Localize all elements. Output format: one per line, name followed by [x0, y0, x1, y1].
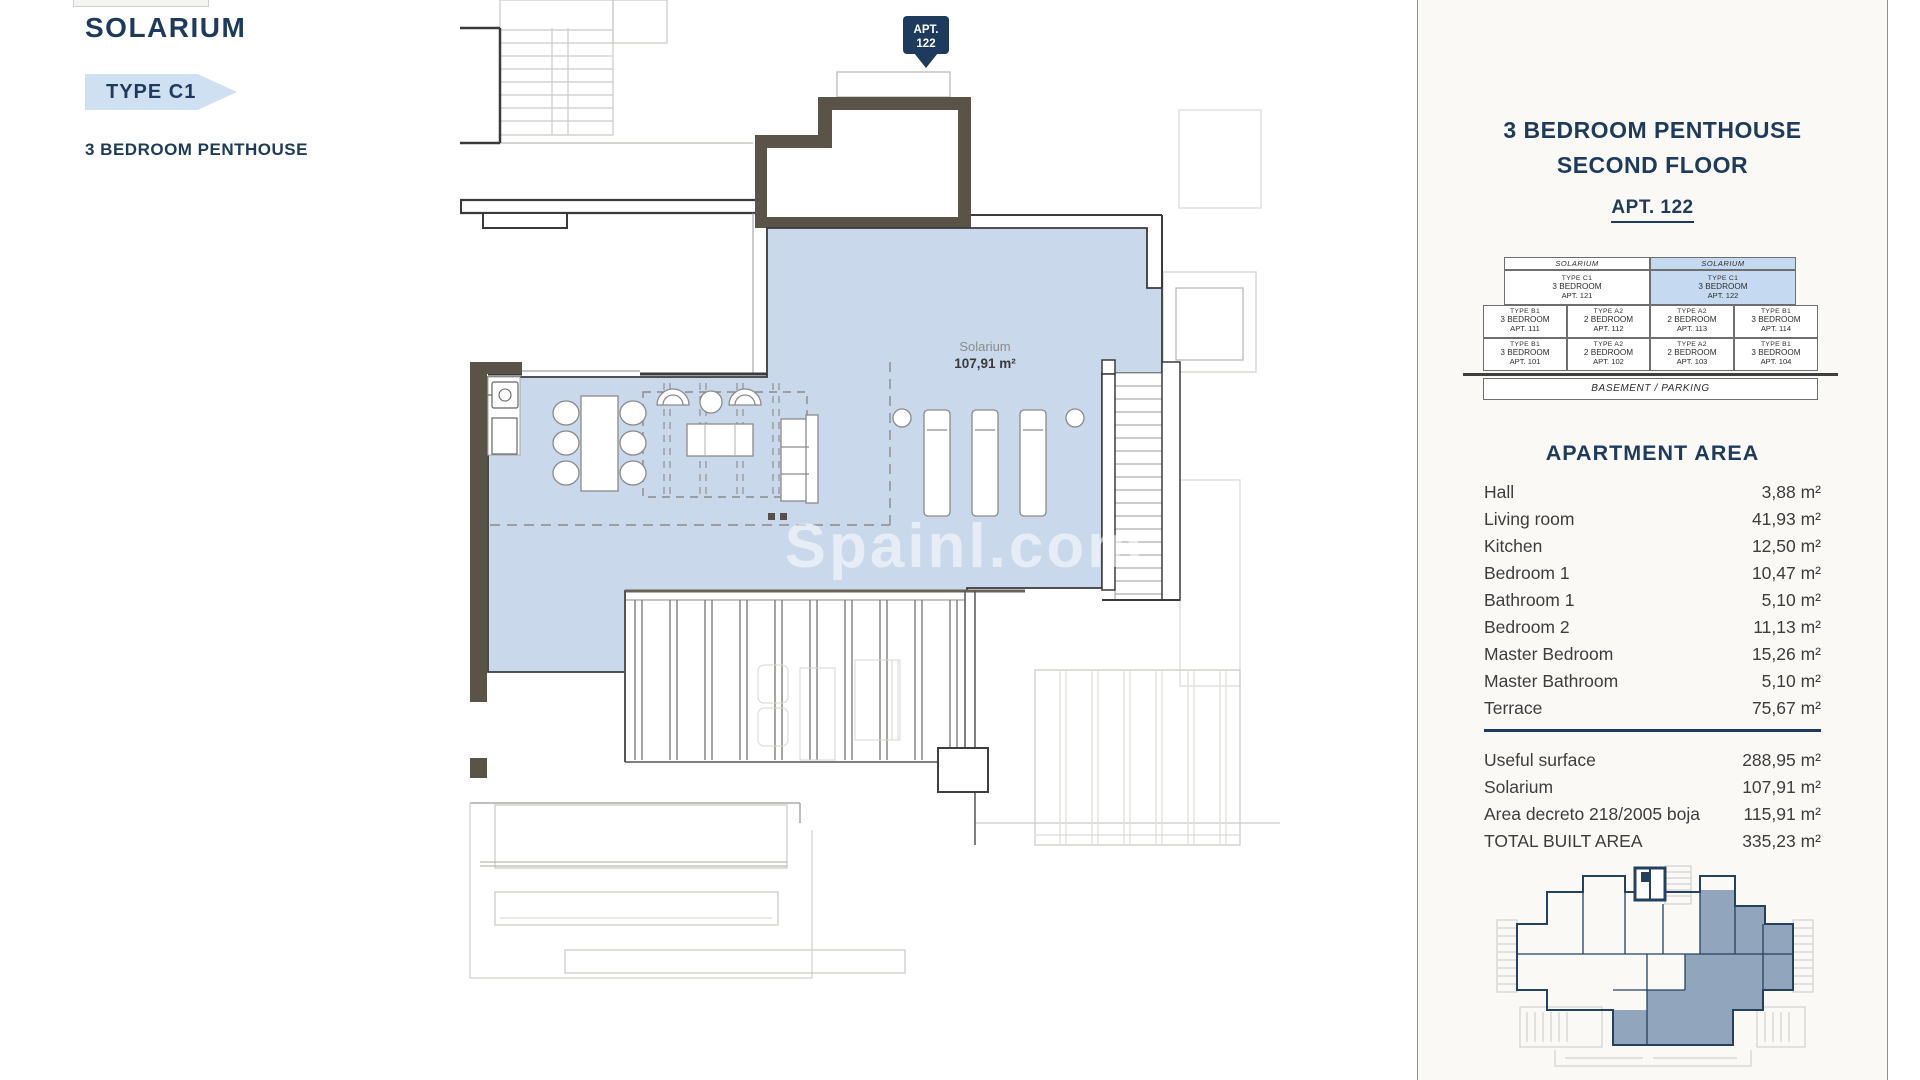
area-row-value: 75,67 m²: [1752, 695, 1821, 722]
total-row-value: 288,95 m²: [1742, 747, 1821, 774]
coffee-table: [687, 424, 753, 456]
page-title: SOLARIUM: [85, 12, 246, 44]
total-row-label: Useful surface: [1484, 747, 1596, 774]
area-row-value: 5,10 m²: [1762, 668, 1821, 695]
stack-cell-apt-122: TYPE C1 3 BEDROOM APT. 122: [1650, 270, 1796, 305]
area-row-value: 11,13 m²: [1753, 614, 1821, 641]
ground-line: [1463, 373, 1838, 376]
area-row-value: 41,93 m²: [1752, 506, 1821, 533]
apt-number: APT. 122: [1418, 197, 1887, 223]
total-row-value: 107,91 m²: [1742, 774, 1821, 801]
sun-lounger: [924, 410, 950, 516]
stack-cell-apt-112: TYPE A22 BEDROOMAPT. 112: [1567, 305, 1650, 338]
area-row-label: Bathroom 1: [1484, 587, 1574, 614]
apt-flag: APT. 122: [903, 16, 949, 68]
area-row-label: Hall: [1484, 479, 1514, 506]
building-stack-diagram: SOLARIUM SOLARIUM TYPE C1 3 BEDROOM APT.…: [1483, 257, 1818, 402]
watermark: Spainl.com: [785, 512, 1146, 581]
total-row-value: 115,91 m²: [1744, 801, 1822, 828]
area-row-label: Kitchen: [1484, 533, 1542, 560]
window-wall: [625, 591, 1025, 845]
stack-cell-basement: BASEMENT / PARKING: [1483, 378, 1818, 400]
total-row-value: 335,23 m²: [1742, 828, 1821, 855]
stack-cell-apt-101: TYPE B13 BEDROOMAPT. 101: [1483, 338, 1567, 371]
panel-title-line1: 3 BEDROOM PENTHOUSE: [1418, 117, 1887, 144]
totals-list: Useful surface288,95 m² Solarium107,91 m…: [1484, 747, 1821, 855]
total-row: Solarium107,91 m²: [1484, 774, 1821, 801]
room-area-label: 107,91 m²: [954, 356, 1016, 371]
area-row: Terrace75,67 m²: [1484, 695, 1821, 722]
brochure-page: SOLARIUM TYPE C1 3 BEDROOM PENTHOUSE: [0, 0, 1920, 1080]
area-row: Kitchen12,50 m²: [1484, 533, 1821, 560]
stack-cell-apt-111: TYPE B13 BEDROOMAPT. 111: [1483, 305, 1567, 338]
stack-cell-solarium-122: SOLARIUM: [1650, 257, 1796, 270]
divider-rule: [1484, 729, 1821, 732]
area-row: Living room41,93 m²: [1484, 506, 1821, 533]
sofa: [781, 419, 809, 501]
area-row-label: Master Bedroom: [1484, 641, 1613, 668]
stack-cell-apt-103: TYPE A22 BEDROOMAPT. 103: [1650, 338, 1734, 371]
area-row: Master Bedroom15,26 m²: [1484, 641, 1821, 668]
area-row-value: 10,47 m²: [1752, 560, 1821, 587]
total-row-label: Area decreto 218/2005 boja: [1484, 801, 1700, 828]
floor-plan: Solarium 107,91 m² Spainl.com APT. 122: [440, 0, 1290, 1080]
area-row-value: 15,26 m²: [1752, 641, 1821, 668]
area-row-value: 5,10 m²: [1762, 587, 1821, 614]
area-row-label: Master Bathroom: [1484, 668, 1618, 695]
stack-cell-apt-113: TYPE A22 BEDROOMAPT. 113: [1650, 305, 1734, 338]
stack-cell-apt-104: TYPE B13 BEDROOMAPT. 104: [1734, 338, 1818, 371]
dining-table: [581, 396, 618, 491]
cropped-plan-fragment: [73, 0, 209, 7]
area-row-label: Bedroom 2: [1484, 614, 1570, 641]
area-row-label: Bedroom 1: [1484, 560, 1570, 587]
area-row: Master Bathroom5,10 m²: [1484, 668, 1821, 695]
area-row: Bathroom 15,10 m²: [1484, 587, 1821, 614]
key-plan: [1495, 862, 1815, 1077]
area-row-value: 12,50 m²: [1752, 533, 1821, 560]
room-name-label: Solarium: [959, 339, 1010, 354]
area-row: Bedroom 211,13 m²: [1484, 614, 1821, 641]
apt-flag-line2: 122: [916, 38, 935, 50]
total-row-label: TOTAL BUILT AREA: [1484, 828, 1643, 855]
stack-cell-solarium-121: SOLARIUM: [1504, 257, 1650, 270]
area-row-value: 3,88 m²: [1762, 479, 1821, 506]
area-section-title: APARTMENT AREA: [1418, 441, 1887, 466]
area-row-label: Terrace: [1484, 695, 1542, 722]
stack-cell-apt-114: TYPE B13 BEDROOMAPT. 114: [1734, 305, 1818, 338]
area-row-label: Living room: [1484, 506, 1574, 533]
total-row: Area decreto 218/2005 boja115,91 m²: [1484, 801, 1821, 828]
total-row-label: Solarium: [1484, 774, 1553, 801]
stack-cell-apt-102: TYPE A22 BEDROOMAPT. 102: [1567, 338, 1650, 371]
area-row: Bedroom 110,47 m²: [1484, 560, 1821, 587]
apt-flag-line1: APT.: [914, 24, 939, 36]
area-row: Hall3,88 m²: [1484, 479, 1821, 506]
stack-cell-apt-121: TYPE C1 3 BEDROOM APT. 121: [1504, 270, 1650, 305]
page-subtitle: 3 BEDROOM PENTHOUSE: [85, 140, 308, 160]
sun-lounger: [1020, 410, 1046, 516]
total-row: TOTAL BUILT AREA335,23 m²: [1484, 828, 1821, 855]
room-area-list: Hall3,88 m² Living room41,93 m² Kitchen1…: [1484, 479, 1821, 722]
sun-lounger: [972, 410, 998, 516]
type-badge: TYPE C1: [85, 74, 237, 110]
total-row: Useful surface288,95 m²: [1484, 747, 1821, 774]
panel-title-line2: SECOND FLOOR: [1418, 152, 1887, 179]
